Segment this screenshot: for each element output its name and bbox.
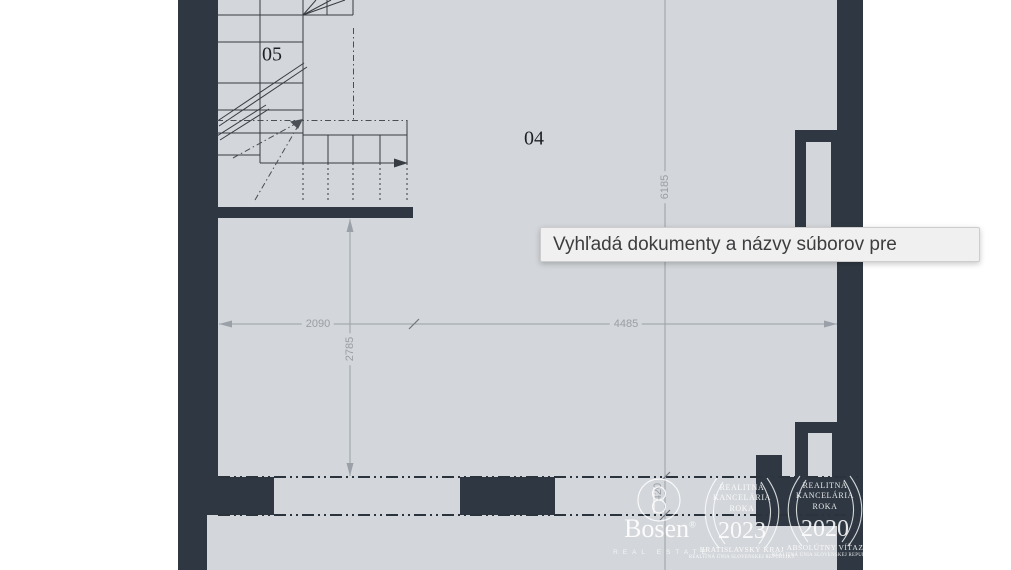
- badge-line2: KANCELÁRIA: [770, 491, 880, 500]
- room-label-04: 04: [524, 128, 544, 151]
- badge-year: 2020: [770, 516, 880, 543]
- dim-height-right: 6185: [659, 171, 671, 203]
- left-wall-bottom: [178, 515, 207, 570]
- dim-height-left: 2785: [344, 333, 356, 365]
- stair-arrow-right: [394, 159, 408, 168]
- room-label-05: 05: [262, 44, 282, 67]
- badge-award: ABSOLÚTNY VÍŤAZ: [770, 543, 880, 552]
- dim-width-left: 2090: [302, 318, 334, 330]
- badge-line3: ROKA: [770, 502, 880, 511]
- stair-construction-lines: [217, 28, 407, 200]
- left-wall-block: [178, 477, 274, 515]
- tooltip: Vyhľadá dokumenty a názvy súborov pre: [540, 227, 980, 262]
- dim-width-right: 4485: [610, 318, 642, 330]
- screen: 05 04 2090 4485 2785 6185 420 Bosen® REA…: [0, 0, 1011, 570]
- stair-walkline-arrow: [290, 119, 303, 129]
- stair-bottom-wall: [218, 207, 413, 218]
- left-wall: [178, 0, 218, 477]
- bottom-mid-block: [460, 477, 555, 515]
- badge-org: REALITNÁ ÚNIA SLOVENSKEJ REPUBLIKY: [770, 553, 880, 558]
- staircase: [216, 0, 408, 203]
- badge-line1: REALITNÁ: [770, 481, 880, 490]
- award-badge-2020: REALITNÁ KANCELÁRIA ROKA 2020 ABSOLÚTNY …: [770, 470, 880, 570]
